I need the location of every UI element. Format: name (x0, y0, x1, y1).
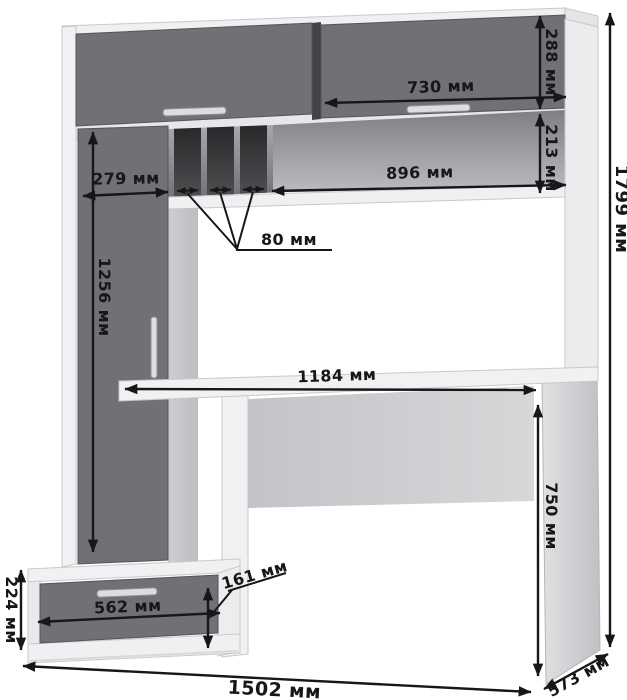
desk-modesty-panel (248, 386, 534, 508)
dim-overall-width-label: 1502 мм (227, 677, 321, 700)
upper-right-door-handle (407, 104, 470, 113)
divider-wall-2 (201, 128, 207, 196)
dim-desktop-width-line (125, 389, 536, 390)
left-tall-door-handle (151, 317, 157, 378)
divider-wall-3 (234, 126, 240, 194)
dim-hutch-door-width-label: 730 мм (407, 76, 475, 97)
divider-rack (168, 125, 273, 197)
dim-overall-width: 1502 мм (23, 666, 531, 700)
slot-2 (207, 127, 234, 196)
dim-hutch-door-height-label: 288 мм (542, 28, 561, 96)
right-side-panel (565, 19, 598, 374)
dim-left-door-height-label: 1256 мм (95, 257, 114, 336)
pedestal-left-side (28, 581, 40, 653)
slot-3 (240, 125, 267, 194)
dim-overall-height: 1799 мм (610, 13, 627, 647)
dim-shelf-opening-height-label: 213 мм (542, 124, 561, 192)
slot-1 (174, 128, 201, 197)
dim-pedestal-height-label: 224 мм (2, 576, 21, 644)
dim-desk-height-label: 750 мм (542, 482, 561, 550)
dim-left-column-width-label: 279 мм (92, 168, 160, 188)
divider-wall-1 (168, 129, 174, 197)
dim-desktop-width-label: 1184 мм (297, 365, 377, 387)
dim-slot2-arrow (210, 190, 231, 191)
furniture-dimension-diagram: 1799 мм 288 мм 730 мм 213 мм 896 мм 279 … (0, 0, 627, 700)
dim-slot1-arrow (177, 190, 198, 191)
dim-overall-height-label: 1799 мм (611, 165, 627, 254)
diagram-canvas: 1799 мм 288 мм 730 мм 213 мм 896 мм 279 … (0, 0, 627, 700)
left-side-panel (62, 26, 76, 567)
dim-shelf-width-label: 896 мм (386, 162, 454, 183)
dim-slot-width-label: 80 мм (261, 230, 317, 249)
dim-shelf-opening-height: 213 мм (540, 114, 561, 193)
dim-pedestal-height: 224 мм (2, 570, 21, 650)
dim-slot3-arrow (243, 189, 264, 190)
upper-left-door-handle (163, 107, 226, 116)
dim-hutch-door-height: 288 мм (540, 16, 561, 109)
dim-drawer-width-label: 562 мм (94, 596, 162, 618)
divider-wall-4 (267, 125, 273, 193)
upper-door-gap (312, 22, 321, 120)
